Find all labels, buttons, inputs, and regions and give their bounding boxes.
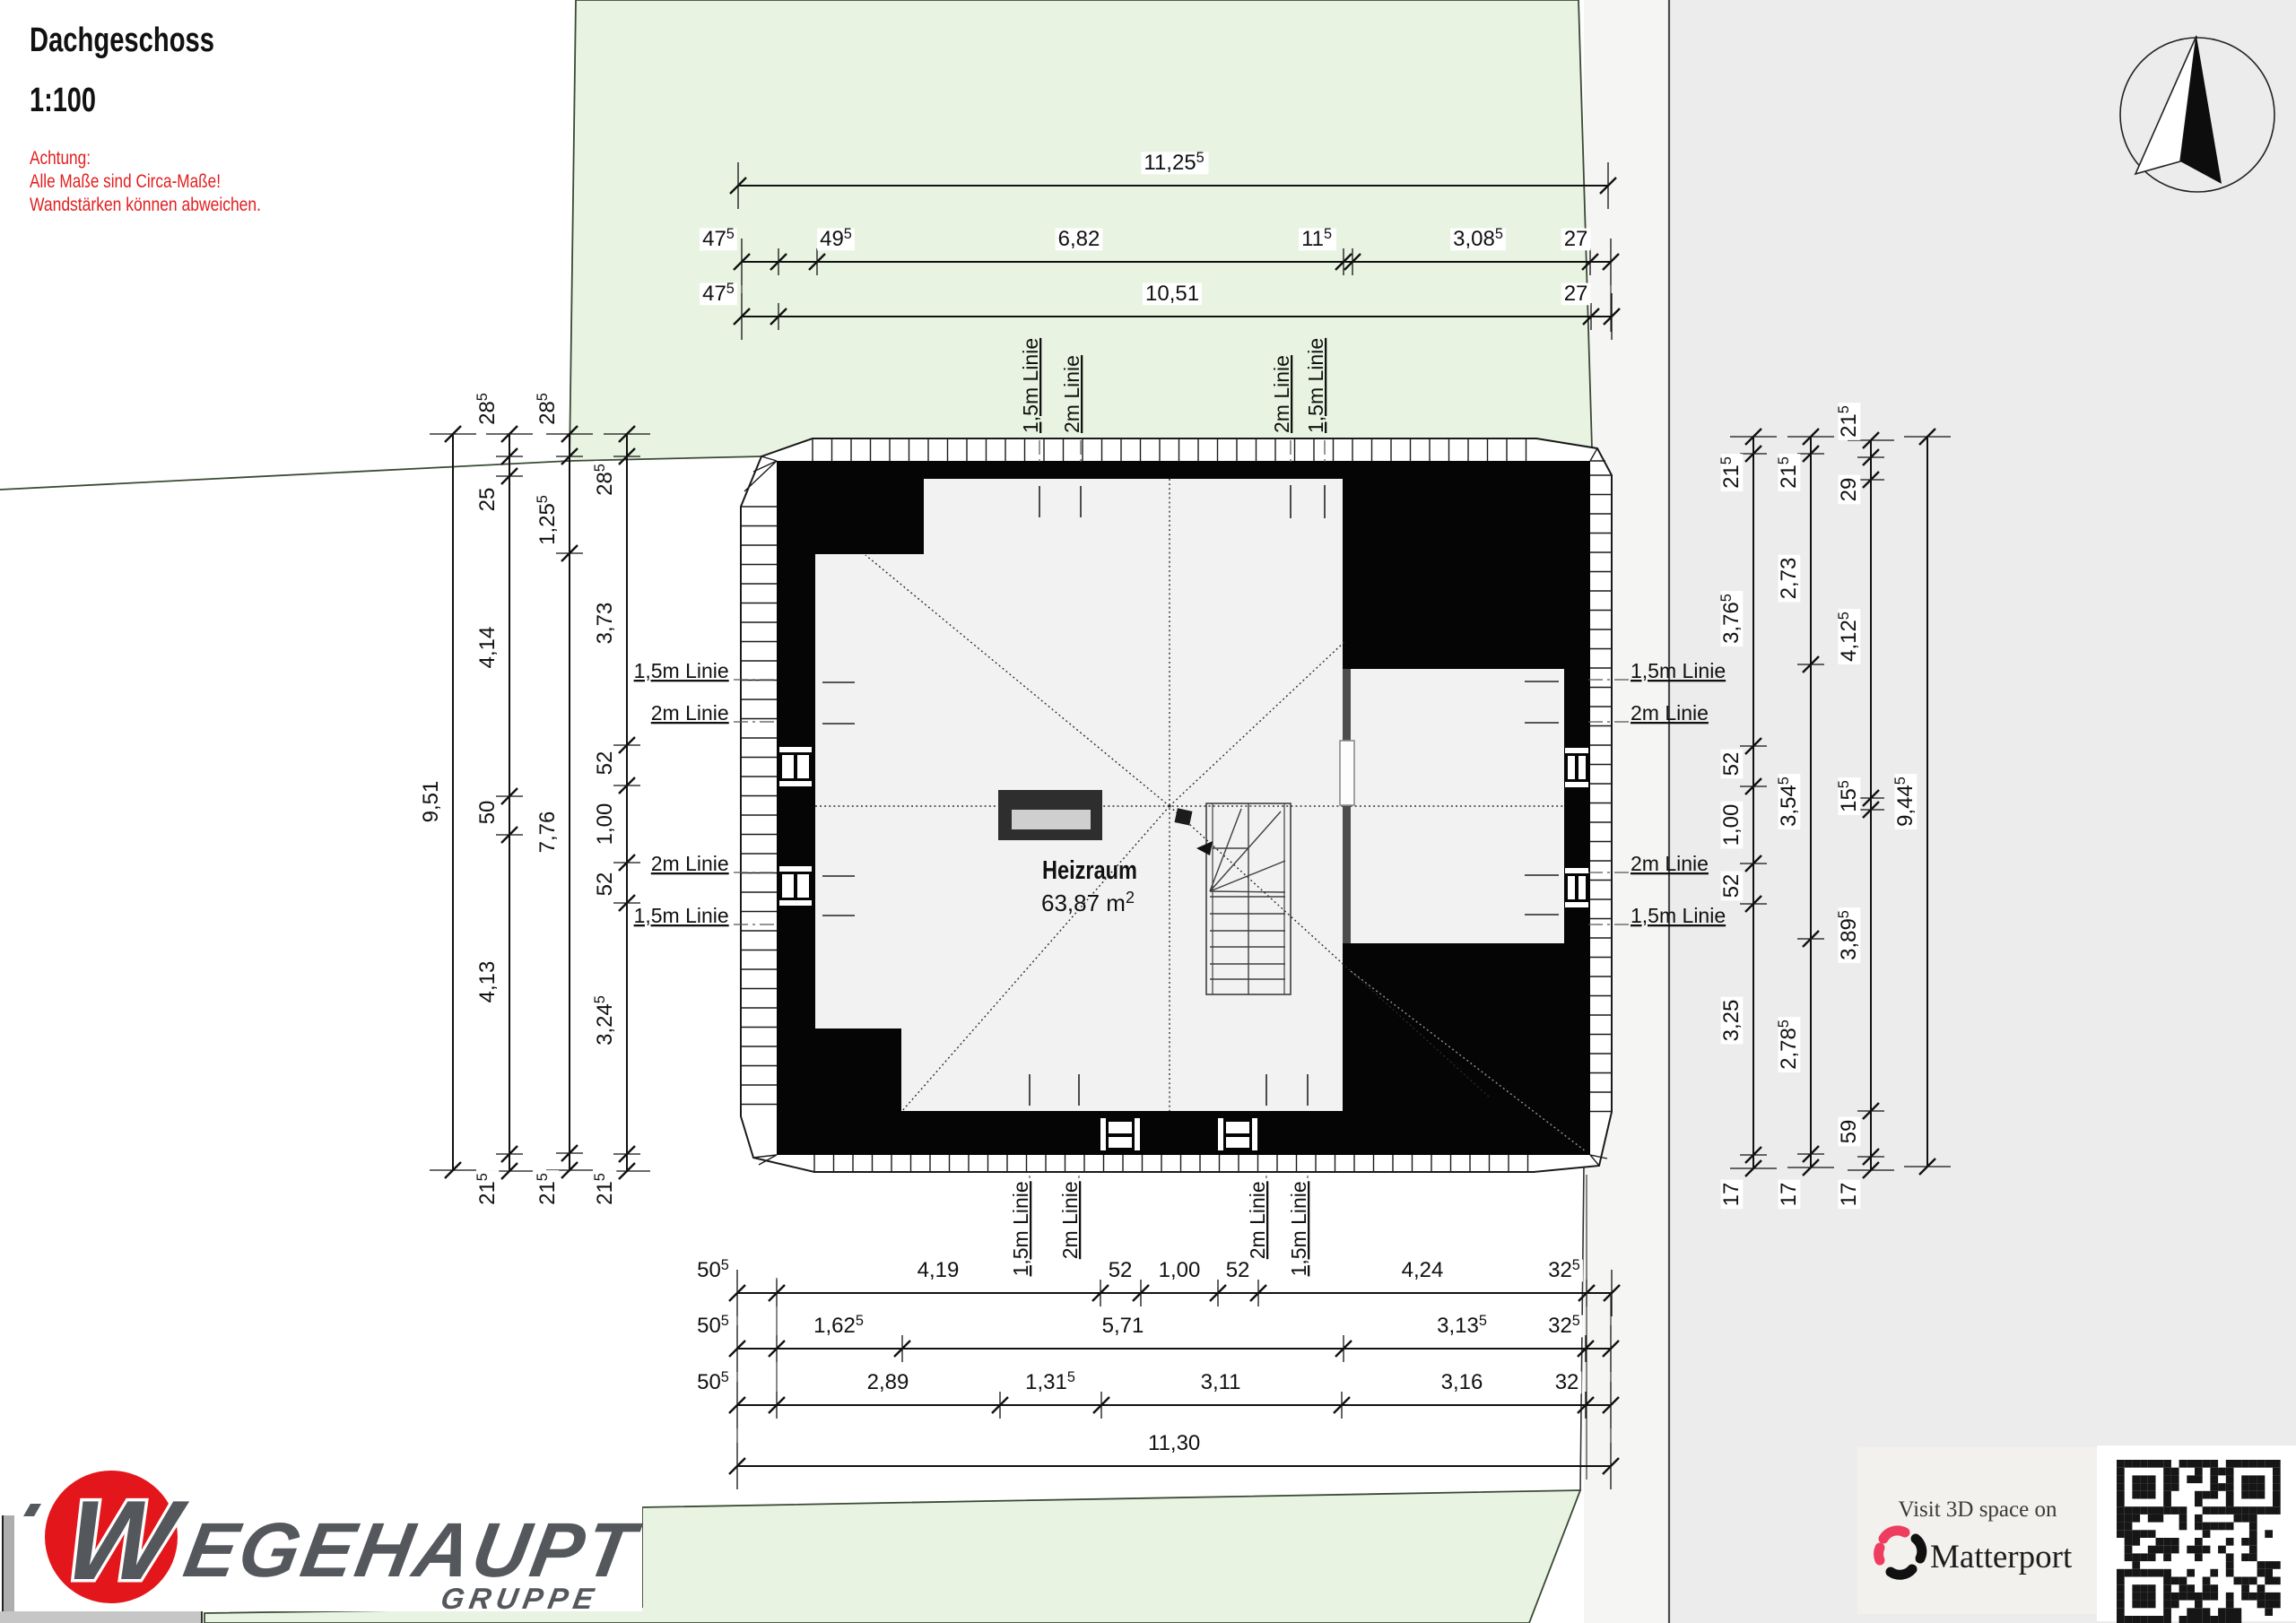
svg-text:2,89: 2,89 xyxy=(867,1370,909,1394)
svg-text:4,14: 4,14 xyxy=(475,627,500,669)
svg-text:Dachgeschoss: Dachgeschoss xyxy=(30,22,214,59)
svg-text:52: 52 xyxy=(1719,752,1744,777)
svg-text:1,5m Linie: 1,5m Linie xyxy=(1631,659,1726,682)
svg-text:7,76: 7,76 xyxy=(535,811,560,854)
svg-text:2m Linie: 2m Linie xyxy=(1058,1181,1082,1259)
svg-text:1,5m Linie: 1,5m Linie xyxy=(1631,904,1726,927)
svg-text:1,5m Linie: 1,5m Linie xyxy=(1304,338,1327,433)
svg-text:32: 32 xyxy=(1555,1370,1579,1394)
svg-text:3,16: 3,16 xyxy=(1441,1370,1483,1394)
svg-text:2m Linie: 2m Linie xyxy=(1631,852,1709,875)
svg-text:2m Linie: 2m Linie xyxy=(651,852,729,875)
svg-text:59: 59 xyxy=(1837,1120,1861,1144)
svg-text:52: 52 xyxy=(1226,1258,1250,1282)
svg-text:1,5m Linie: 1,5m Linie xyxy=(1287,1181,1310,1276)
svg-text:EGEHAUPT: EGEHAUPT xyxy=(178,1508,648,1593)
svg-text:1,00: 1,00 xyxy=(1159,1258,1201,1282)
svg-text:1,5m Linie: 1,5m Linie xyxy=(1019,338,1042,433)
svg-text:9,51: 9,51 xyxy=(419,781,443,823)
svg-text:29: 29 xyxy=(1837,478,1861,502)
svg-text:2m Linie: 2m Linie xyxy=(1060,355,1083,433)
svg-text:Heizraum: Heizraum xyxy=(1042,856,1137,885)
svg-text:25: 25 xyxy=(475,488,500,512)
svg-text:Achtung:: Achtung: xyxy=(30,148,91,169)
svg-text:Visit 3D space on: Visit 3D space on xyxy=(1899,1497,2057,1522)
svg-text:27: 27 xyxy=(1564,282,1588,306)
svg-text:17: 17 xyxy=(1777,1183,1801,1207)
svg-text:2m Linie: 2m Linie xyxy=(651,701,729,725)
svg-text:11,30: 11,30 xyxy=(1148,1431,1200,1455)
svg-text:Wandstärken können abweichen.: Wandstärken können abweichen. xyxy=(30,195,261,215)
svg-text:17: 17 xyxy=(1719,1183,1744,1207)
svg-text:2m Linie: 2m Linie xyxy=(1270,355,1293,433)
svg-text:63,87 m2: 63,87 m2 xyxy=(1041,889,1135,916)
svg-text:1,00: 1,00 xyxy=(1719,804,1744,846)
svg-text:1:100: 1:100 xyxy=(30,82,96,119)
svg-text:50: 50 xyxy=(475,801,500,825)
svg-text:3,25: 3,25 xyxy=(1719,1000,1744,1042)
svg-text:5,71: 5,71 xyxy=(1102,1314,1144,1338)
svg-text:4,19: 4,19 xyxy=(918,1258,960,1282)
svg-text:11,255: 11,255 xyxy=(1144,150,1204,175)
svg-text:2,73: 2,73 xyxy=(1777,558,1801,600)
svg-text:52: 52 xyxy=(593,872,617,897)
svg-text:Alle Maße sind Circa-Maße!: Alle Maße sind Circa-Maße! xyxy=(30,171,221,192)
svg-text:10,51: 10,51 xyxy=(1145,282,1199,306)
svg-text:2m Linie: 2m Linie xyxy=(1631,701,1709,725)
svg-text:52: 52 xyxy=(593,751,617,776)
svg-text:52: 52 xyxy=(1109,1258,1133,1282)
svg-text:2m Linie: 2m Linie xyxy=(1246,1181,1269,1259)
svg-text:1,00: 1,00 xyxy=(593,803,617,846)
svg-text:3,11: 3,11 xyxy=(1201,1370,1241,1394)
svg-text:4,24: 4,24 xyxy=(1402,1258,1444,1282)
svg-text:Matterport: Matterport xyxy=(1930,1539,2073,1575)
svg-text:1,5m Linie: 1,5m Linie xyxy=(634,659,729,682)
svg-text:1,5m Linie: 1,5m Linie xyxy=(634,904,729,927)
svg-text:6,82: 6,82 xyxy=(1058,227,1100,251)
svg-text:3,73: 3,73 xyxy=(593,603,617,645)
svg-text:1,5m Linie: 1,5m Linie xyxy=(1009,1181,1032,1276)
svg-text:17: 17 xyxy=(1837,1183,1861,1207)
svg-text:27: 27 xyxy=(1564,227,1588,251)
svg-text:52: 52 xyxy=(1719,874,1744,898)
svg-text:GRUPPE: GRUPPE xyxy=(439,1583,602,1616)
svg-text:4,13: 4,13 xyxy=(475,961,500,1003)
